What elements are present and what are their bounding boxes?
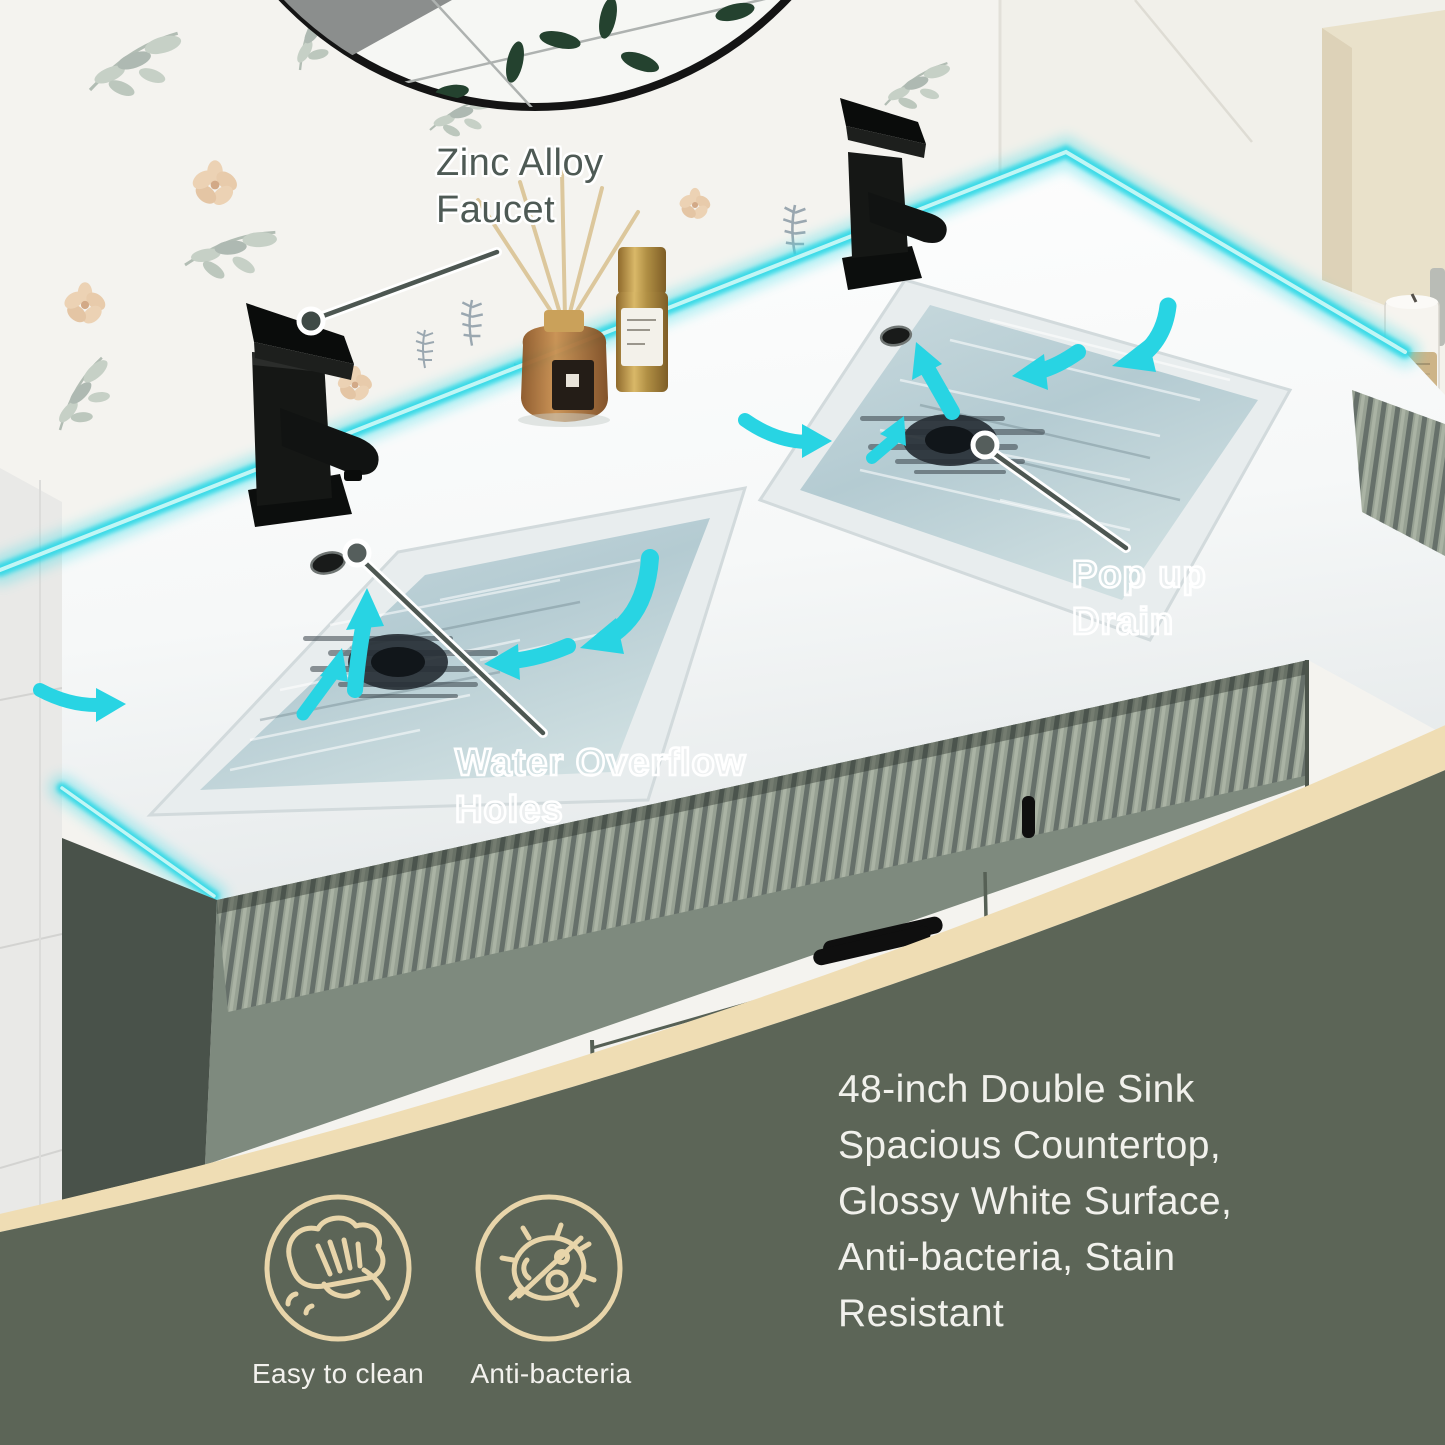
faucet-annotation-line2: Faucet xyxy=(436,187,604,234)
overflow-annotation: Water Overflow Holes xyxy=(455,740,746,834)
gold-pump-bottle xyxy=(616,247,668,392)
overflow-line2: Holes xyxy=(455,787,746,834)
callout-dot-drain xyxy=(973,433,997,457)
callout-dot-faucet xyxy=(299,309,323,333)
overflow-line1: Water Overflow xyxy=(455,740,746,787)
cabinet-side-panel xyxy=(62,838,217,1200)
feature-line: Resistant xyxy=(838,1286,1358,1342)
popup-drain-line1: Pop up xyxy=(1072,552,1207,599)
easy-clean-label: Easy to clean xyxy=(252,1358,424,1390)
popup-drain-annotation: Pop up Drain xyxy=(1072,552,1207,646)
product-marketing-image: Zinc Alloy Faucet Pop up Drain Water Ove… xyxy=(0,0,1445,1445)
callout-dot-overflow xyxy=(345,541,369,565)
popup-drain-line2: Drain xyxy=(1072,599,1207,646)
faucet-annotation: Zinc Alloy Faucet xyxy=(436,140,604,234)
feature-line: Glossy White Surface, xyxy=(838,1174,1358,1230)
anti-bacteria-label: Anti-bacteria xyxy=(470,1358,631,1390)
cabinet-handle xyxy=(1022,796,1035,838)
feature-line: Spacious Countertop, xyxy=(838,1118,1358,1174)
feature-description: 48-inch Double Sink Spacious Countertop,… xyxy=(838,1062,1358,1342)
feature-line: Anti-bacteria, Stain xyxy=(838,1230,1358,1286)
faucet-annotation-line1: Zinc Alloy xyxy=(436,140,604,187)
feature-line: 48-inch Double Sink xyxy=(838,1062,1358,1118)
